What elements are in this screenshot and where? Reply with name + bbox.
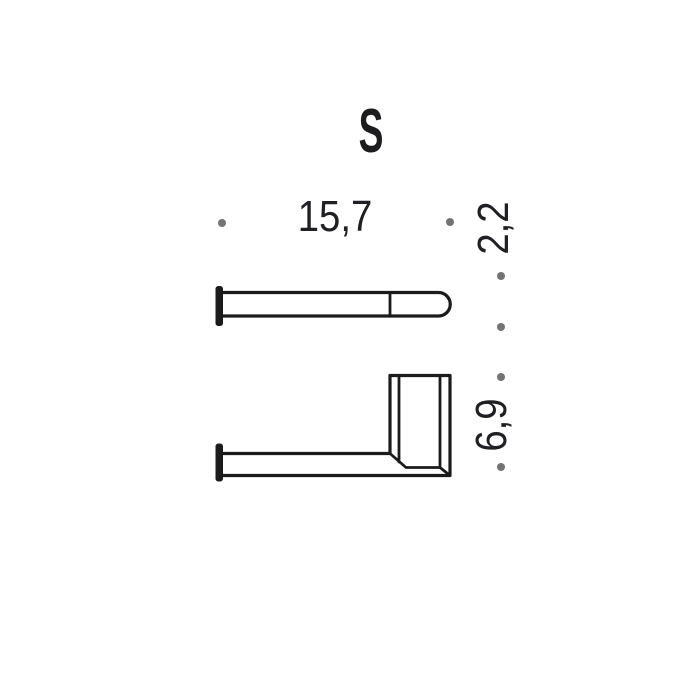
product-line-drawing	[0, 0, 700, 700]
top-view-drawing	[216, 286, 451, 326]
technical-drawing-canvas: S 15,7 2,2 6,9	[0, 0, 700, 700]
bar-outline	[223, 293, 450, 317]
side-view-drawing	[216, 376, 451, 482]
holder-outline	[223, 376, 450, 476]
holder-inner-edges	[390, 378, 450, 476]
